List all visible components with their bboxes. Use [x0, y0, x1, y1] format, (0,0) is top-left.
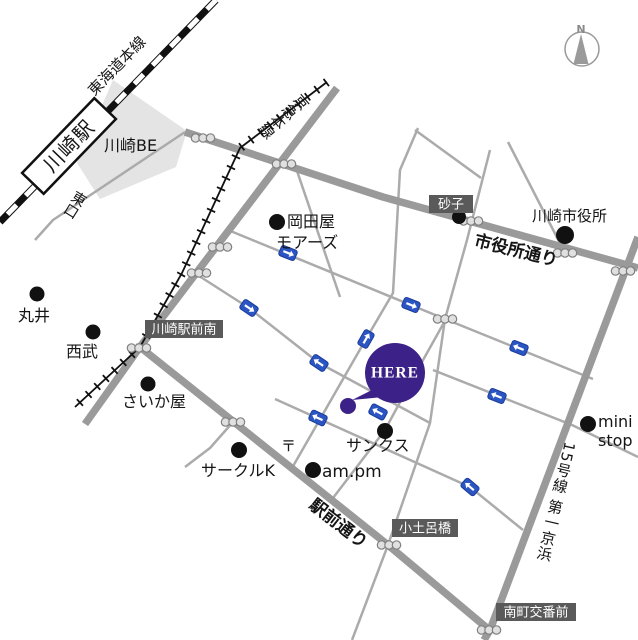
here-target-dot	[340, 398, 356, 414]
street-network-thin	[35, 128, 638, 640]
route-map: 川崎駅 砂子 川崎駅前南 小土呂橋 南町交番前 川崎BE 岡田屋 モアーズ 丸井…	[0, 0, 638, 640]
city-hall-label: 川崎市役所	[532, 207, 607, 225]
one-way-arrow-icon	[401, 297, 421, 314]
seibu-label: 西武	[66, 342, 98, 361]
am-pm-dot	[305, 462, 321, 478]
marui-dot	[30, 287, 45, 302]
traffic-signal-icon	[191, 134, 214, 142]
traffic-signal-icon	[377, 541, 400, 549]
marui-label: 丸井	[18, 306, 50, 325]
city-hall-dot	[556, 226, 574, 244]
traffic-signal-icon	[208, 243, 231, 251]
kodorobashi-badge-label: 小土呂橋	[399, 522, 451, 537]
ministop-dot	[580, 416, 596, 432]
post-office-icon: 〒	[281, 437, 296, 455]
traffic-signal-icon	[272, 160, 295, 168]
compass-north-label: N	[576, 23, 585, 36]
circle-k-label: サークルK	[201, 461, 276, 480]
ministop-label-line2: stop	[598, 431, 633, 450]
traffic-signal-icon	[611, 267, 634, 275]
one-way-arrow-icon	[487, 388, 507, 405]
saikaya-dot	[141, 377, 156, 392]
compass: N	[565, 23, 599, 66]
traffic-signal-icon	[477, 626, 500, 634]
one-way-arrow-icon	[509, 340, 529, 357]
here-label: HERE	[371, 365, 419, 382]
here-marker: HERE	[340, 343, 425, 414]
traffic-signal-icon	[221, 418, 244, 426]
ekimae-minami-badge-label: 川崎駅前南	[151, 322, 216, 338]
saikaya-label: さいか屋	[122, 392, 186, 411]
ministop-label-line1: mini	[598, 412, 633, 431]
traffic-signal-icon	[127, 344, 150, 352]
compass-needle	[574, 34, 589, 64]
sunkus-label: サンクス	[346, 436, 410, 455]
street	[415, 130, 481, 178]
seibu-dot	[86, 325, 101, 340]
okadaya-label-line2: モアーズ	[276, 233, 338, 252]
one-way-arrow-icon	[357, 329, 375, 349]
traffic-signal-icon	[433, 315, 456, 323]
okadaya-dot	[269, 214, 285, 230]
okadaya-label-line1: 岡田屋	[287, 212, 335, 231]
one-way-arrow-icon	[368, 403, 388, 421]
kawasaki-be-label: 川崎BE	[104, 136, 157, 155]
minamicho-badge-label: 南町交番前	[503, 605, 568, 621]
east-exit-label: 東口	[59, 187, 88, 221]
am-pm-label: am.pm	[322, 462, 382, 482]
sunago-badge-label: 砂子	[438, 198, 464, 213]
circle-k-dot	[231, 442, 247, 458]
traffic-signal-icon	[187, 269, 210, 277]
